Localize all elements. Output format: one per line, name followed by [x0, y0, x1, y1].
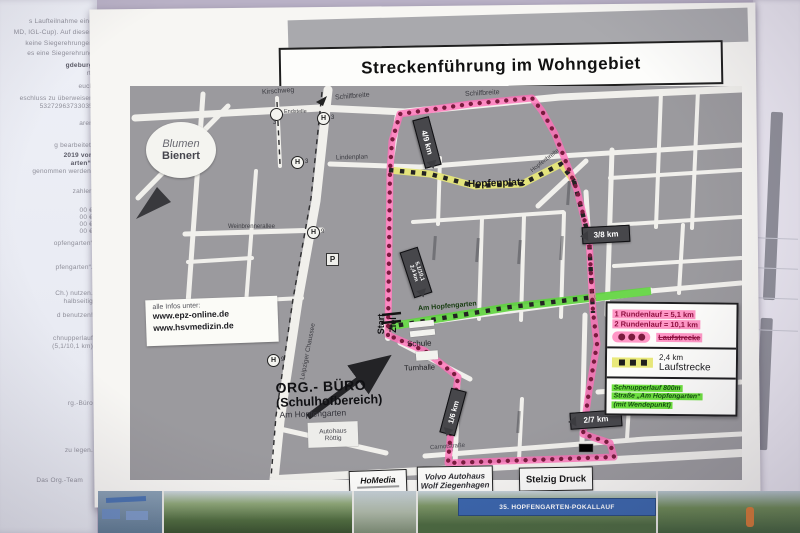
km-marker-3-8: 3/8 km [582, 225, 631, 244]
tram-h-glyph: H [271, 357, 276, 364]
route-map: Blumen Bienert Kirschweg Schilfbreite Sc… [130, 86, 742, 480]
homedia-subtitle-line [357, 485, 399, 488]
event-photo [98, 491, 162, 533]
tram-stop-icon: H [317, 112, 330, 125]
legend-laufstrecke2: Laufstrecke [659, 362, 711, 374]
legend-schnupper3: (mit Wendepunkt) [611, 401, 672, 409]
tram-stop-icon: H [307, 226, 320, 239]
parking-p-glyph: P [330, 255, 335, 264]
sheet-text-fragment: gdeburg [66, 62, 93, 69]
sheet-text-fragment: rg.-Büro [68, 400, 93, 407]
sheet-text-fragment: 2019 von [64, 152, 93, 159]
bienert-label: Bienert [162, 150, 200, 162]
poster-title-text: Streckenführung im Wohngebiet [361, 54, 641, 79]
tram-line-number: 3 [331, 115, 334, 121]
sheet-text-fragment: 53272963733035 [40, 103, 93, 110]
tram-stop-icon: H [291, 156, 304, 169]
table-column-bar [763, 112, 783, 300]
sheet-text-fragment: pfengarten“. [56, 264, 93, 271]
legend-round2: 2 Rundenlauf = 10,1 km [612, 319, 700, 329]
blumen-label: Blumen [162, 138, 199, 150]
stelzig-label: Stelzig Druck [526, 473, 586, 485]
legend-dots-swatch [612, 331, 650, 342]
km-marker-text: 3/8 km [593, 229, 618, 239]
sheet-signature: Das Org.-Team [36, 477, 83, 484]
street-label-weinbrennerallee: Weinbrennerallee [228, 224, 275, 230]
sheet-text-fragment: (5,1/10,1 km) [52, 343, 93, 350]
autohaus-line2: Röttig [325, 434, 342, 442]
runner-figure [746, 507, 754, 527]
tram-h-glyph: H [311, 229, 316, 236]
street-label-lindenplan: Lindenplan [336, 153, 368, 161]
org-office-block: ORG.- BÜRO (Schulhofbereich) Am Hopfenga… [275, 376, 383, 420]
km-marker-text: 1/6 km [446, 400, 461, 425]
sheet-text-fragment: d benutzen! [57, 312, 93, 319]
legend-box: 1 Rundenlauf = 5,1 km 2 Rundenlauf = 10,… [604, 301, 738, 416]
homedia-label: HoMedia [360, 474, 396, 485]
sheet-text-fragment: halbseitig [64, 298, 93, 305]
sheet-text-fragment: arten“. [71, 160, 93, 167]
km-marker-text: 4/9 km [419, 129, 434, 155]
sheet-text-fragment: chnupperlauf [53, 335, 93, 342]
sheet-text-fragment: genommen werden. [32, 168, 93, 175]
tram-terminus-icon [270, 108, 283, 121]
sheet-text-fragment: zu legen. [65, 447, 93, 454]
km-marker-text: 2/7 km [583, 414, 608, 425]
sheet-text-fragment: keine Siegerehrungen [25, 40, 93, 47]
legend-laufstrecke1: Laufstrecke [656, 332, 702, 341]
event-photo [164, 491, 352, 533]
turnhalle-label: Turnhalle [404, 362, 435, 372]
left-info-sheet: s Laufteilnahme eine MD, IGL-Cup). Auf d… [0, 0, 97, 533]
volvo-line2: Wolf Ziegenhagen [421, 480, 490, 490]
gym-building [416, 350, 439, 361]
event-banner: 35. HOPFENGARTEN-POKALLAUF [458, 498, 656, 516]
photo-strip: 35. HOPFENGARTEN-POKALLAUF [98, 491, 800, 533]
parking-icon: P [326, 253, 339, 266]
tram-line-number: 9 [281, 357, 284, 363]
legend-section-main-route: 1 Rundenlauf = 5,1 km 2 Rundenlauf = 10,… [607, 303, 736, 349]
small-building [579, 444, 593, 452]
sheet-text-fragment: s Laufteilnahme eine [29, 18, 93, 25]
legend-section-24km: 2,4 km Laufstrecke [607, 348, 736, 379]
tram-line-number: 3 [305, 159, 308, 165]
sheet-text-fragment: es eine Siegerehrung [27, 50, 93, 57]
event-banner-text: 35. HOPFENGARTEN-POKALLAUF [499, 504, 614, 511]
tram-h-glyph: H [295, 159, 300, 166]
ziel-label: Ziel [388, 310, 398, 340]
sheet-text-fragment: eschluss zu überweisen [20, 95, 93, 102]
sponsor-autohaus-roettig: Autohaus Röttig [308, 421, 359, 448]
legend-schnupper2: Straße „Am Hopfengarten“ [612, 392, 703, 400]
tram-h-glyph: H [321, 115, 326, 122]
legend-round1: 1 Rundenlauf = 5,1 km [612, 309, 695, 319]
endstelle-label: Endstelle [284, 109, 307, 115]
tram-line-number: 9 [321, 229, 324, 235]
sheet-text-fragment: zahlen [73, 188, 93, 195]
legend-squares-swatch [612, 357, 653, 367]
tram-line-number: 3 [273, 120, 276, 126]
sheet-text-fragment: g bearbeitet! [54, 142, 93, 149]
sheet-text-fragment: Ch.) nutzen. [55, 290, 93, 297]
schule-label: Schule [407, 339, 432, 349]
event-photo [354, 491, 416, 533]
event-photo [658, 491, 800, 533]
sheet-text-fragment: opfengarten“ [54, 240, 93, 247]
photo-of-notice-board: s Laufteilnahme eine MD, IGL-Cup). Auf d… [0, 0, 800, 533]
sponsor-stelzig: Stelzig Druck [519, 466, 593, 491]
poster-title: Streckenführung im Wohngebiet [279, 40, 724, 92]
start-label: Start [376, 309, 386, 339]
legend-section-schnupperlauf: Schnupperlauf 800m Straße „Am Hopfengart… [606, 378, 735, 414]
tram-stop-icon: H [267, 354, 280, 367]
legend-schnupper1: Schnupperlauf 800m [612, 384, 683, 392]
blumen-bienert-callout: Blumen Bienert [146, 122, 216, 178]
info-box: alle Infos unter: www.epz-online.de www.… [145, 296, 279, 347]
place-label-hopfenplatz: Hopfenplatz [468, 177, 526, 190]
sheet-text-fragment: MD, IGL-Cup). Auf diesen [14, 29, 93, 36]
